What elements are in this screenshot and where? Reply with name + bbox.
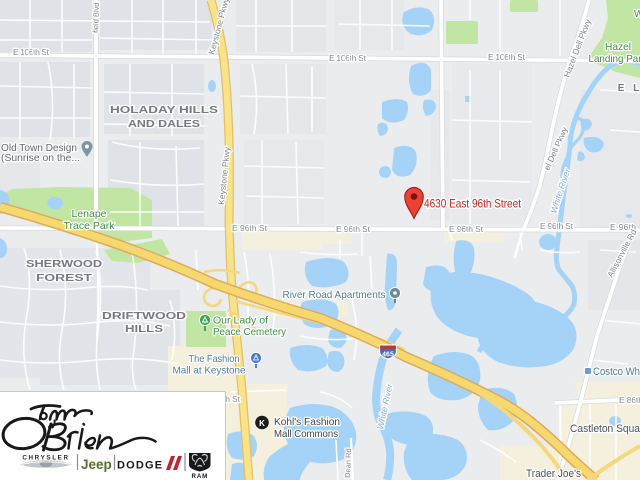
svg-text:AND DALES: AND DALES <box>128 119 200 130</box>
svg-text:River Road Apartments: River Road Apartments <box>283 289 386 301</box>
svg-text:(Sunrise on the...: (Sunrise on the... <box>1 152 80 164</box>
svg-text:FOREST: FOREST <box>36 273 92 284</box>
svg-text:Jeep: Jeep <box>81 457 112 472</box>
svg-text:HILLS: HILLS <box>125 324 163 335</box>
svg-text:Peace Cemetery: Peace Cemetery <box>213 326 287 338</box>
svg-text:Mall at Keystone: Mall at Keystone <box>173 365 246 377</box>
svg-text:CHRYSLER: CHRYSLER <box>22 455 69 462</box>
svg-text:4630 East 96th Street: 4630 East 96th Street <box>424 197 522 211</box>
svg-text:W: W <box>634 9 640 20</box>
svg-text:The Fashion: The Fashion <box>189 353 240 365</box>
svg-text:E 96th St: E 96th St <box>449 224 484 234</box>
svg-text:Trace Park: Trace Park <box>64 220 116 232</box>
svg-text:DODGE: DODGE <box>117 460 163 472</box>
svg-text:E 96th St: E 96th St <box>540 221 574 231</box>
svg-text:Kohl's Fashion: Kohl's Fashion <box>274 416 340 428</box>
svg-text:Lenape: Lenape <box>72 208 107 220</box>
svg-text:field Blvd: field Blvd <box>91 2 101 33</box>
svg-text:Landing Par: Landing Par <box>589 53 640 65</box>
svg-text:Costco Wh: Costco Wh <box>593 366 640 378</box>
svg-text:E L: E L <box>618 83 640 94</box>
svg-text:Castleton Squa: Castleton Squa <box>570 423 640 435</box>
svg-text:Hazel: Hazel <box>605 41 631 53</box>
svg-text:E 106th St: E 106th St <box>13 47 50 57</box>
svg-text:465: 465 <box>382 352 394 359</box>
svg-text:Dean Rd: Dean Rd <box>343 448 353 478</box>
svg-text:E 106th St: E 106th St <box>329 53 367 63</box>
svg-text:E 96th St: E 96th St <box>232 223 268 233</box>
svg-text:E 106th St: E 106th St <box>488 52 526 62</box>
svg-text:DRIFTWOOD: DRIFTWOOD <box>102 311 186 322</box>
svg-text:Our Lady of: Our Lady of <box>213 315 268 327</box>
svg-text:E 86th: E 86th <box>619 395 640 405</box>
svg-text:SHERWOOD: SHERWOOD <box>26 259 102 270</box>
svg-text:K: K <box>259 419 265 428</box>
svg-text:Trader Joe's: Trader Joe's <box>526 468 581 480</box>
svg-text:E 96th St: E 96th St <box>336 224 371 234</box>
svg-text:RAM: RAM <box>192 473 209 480</box>
svg-text:Mall Commons: Mall Commons <box>274 428 338 440</box>
svg-text:HOLADAY HILLS: HOLADAY HILLS <box>110 105 218 116</box>
